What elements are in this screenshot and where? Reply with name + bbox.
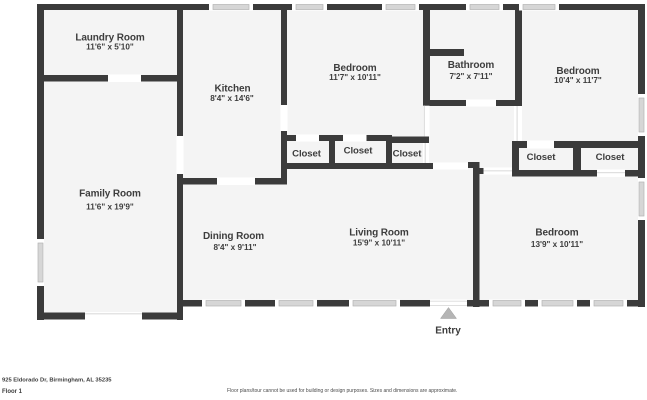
svg-text:15'9" x 10'11": 15'9" x 10'11" [353,239,405,248]
svg-text:Closet: Closet [344,146,374,157]
svg-text:Closet: Closet [292,149,322,160]
svg-text:Bedroom: Bedroom [535,228,578,239]
svg-text:Entry: Entry [435,326,461,337]
svg-text:Family Room: Family Room [79,189,141,200]
svg-text:11'6" x 5'10": 11'6" x 5'10" [86,43,134,52]
svg-text:8'4" x 14'6": 8'4" x 14'6" [210,94,254,103]
svg-text:Living Room: Living Room [349,228,409,239]
svg-text:13'9" x 10'11": 13'9" x 10'11" [531,240,583,249]
svg-text:Closet: Closet [393,149,423,160]
svg-text:Floor plans/tour cannot be use: Floor plans/tour cannot be used for buil… [227,388,457,394]
svg-text:10'4" x 11'7": 10'4" x 11'7" [554,76,602,85]
svg-text:Kitchen: Kitchen [215,84,251,95]
svg-text:Bathroom: Bathroom [448,60,495,71]
svg-text:11'6" x 19'9": 11'6" x 19'9" [86,203,134,212]
svg-text:11'7" x 10'11": 11'7" x 10'11" [329,73,381,82]
svg-text:Floor 1: Floor 1 [2,389,23,395]
svg-text:Closet: Closet [527,152,557,163]
svg-text:8'4" x 9'11": 8'4" x 9'11" [213,243,256,252]
svg-text:925 Eldorado Dr, Birmingham, A: 925 Eldorado Dr, Birmingham, AL 35235 [2,377,112,383]
svg-text:Closet: Closet [596,152,626,163]
svg-text:7'2" x 7'11": 7'2" x 7'11" [449,72,492,81]
svg-text:Dining Room: Dining Room [203,231,264,242]
